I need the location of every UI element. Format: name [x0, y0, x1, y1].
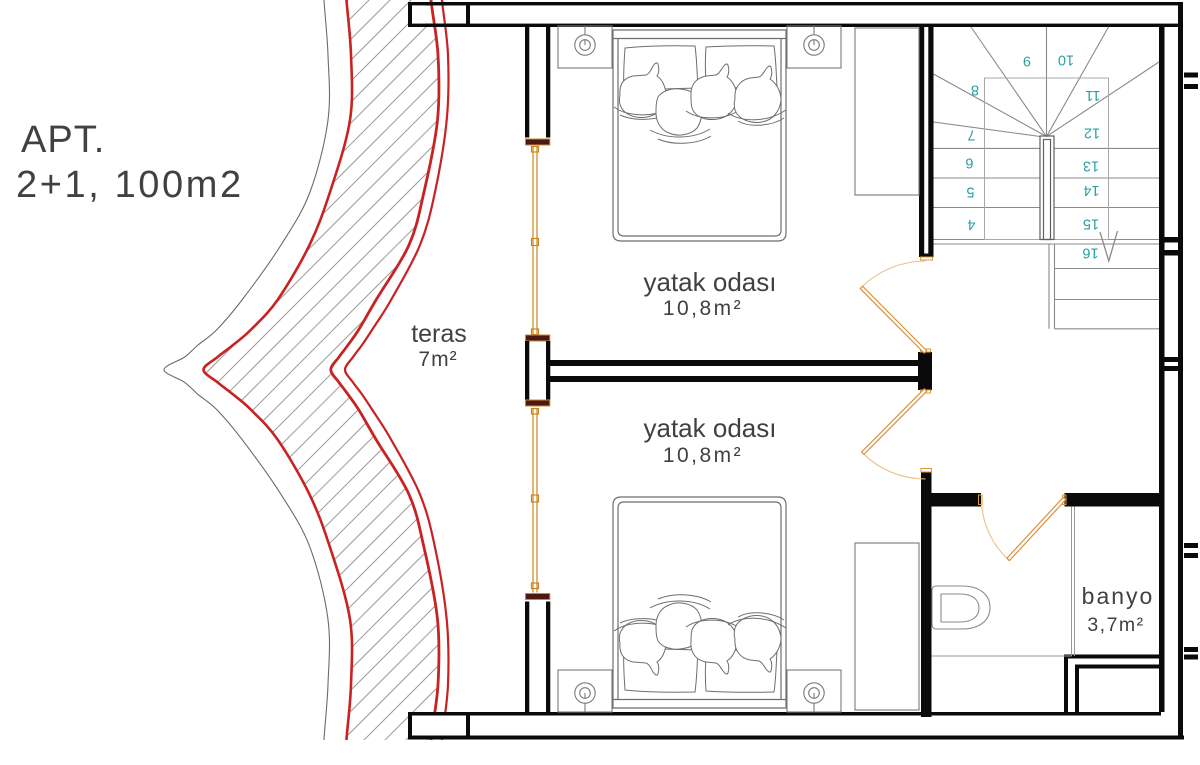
svg-text:10,8m²: 10,8m² [663, 444, 743, 467]
svg-text:banyo: banyo [1082, 583, 1155, 609]
svg-text:11: 11 [1085, 87, 1100, 103]
svg-text:9: 9 [1023, 53, 1031, 69]
svg-text:3,7m²: 3,7m² [1087, 614, 1144, 636]
svg-text:yatak odası: yatak odası [644, 267, 777, 297]
svg-text:10,8m²: 10,8m² [663, 297, 743, 320]
svg-text:5: 5 [966, 184, 974, 200]
svg-text:2+1, 100m2: 2+1, 100m2 [16, 164, 244, 206]
svg-text:4: 4 [967, 216, 975, 232]
svg-text:teras: teras [411, 320, 467, 348]
svg-text:10: 10 [1058, 52, 1074, 68]
svg-text:APT.: APT. [21, 119, 105, 161]
svg-text:13: 13 [1083, 158, 1099, 174]
svg-text:14: 14 [1083, 182, 1099, 198]
svg-text:15: 15 [1083, 216, 1099, 232]
svg-text:yatak odası: yatak odası [644, 413, 777, 443]
svg-text:7: 7 [967, 127, 975, 143]
svg-text:7m²: 7m² [418, 348, 457, 371]
svg-text:6: 6 [965, 155, 973, 171]
svg-text:16: 16 [1082, 245, 1098, 261]
svg-text:12: 12 [1084, 125, 1100, 141]
svg-text:8: 8 [971, 82, 979, 98]
